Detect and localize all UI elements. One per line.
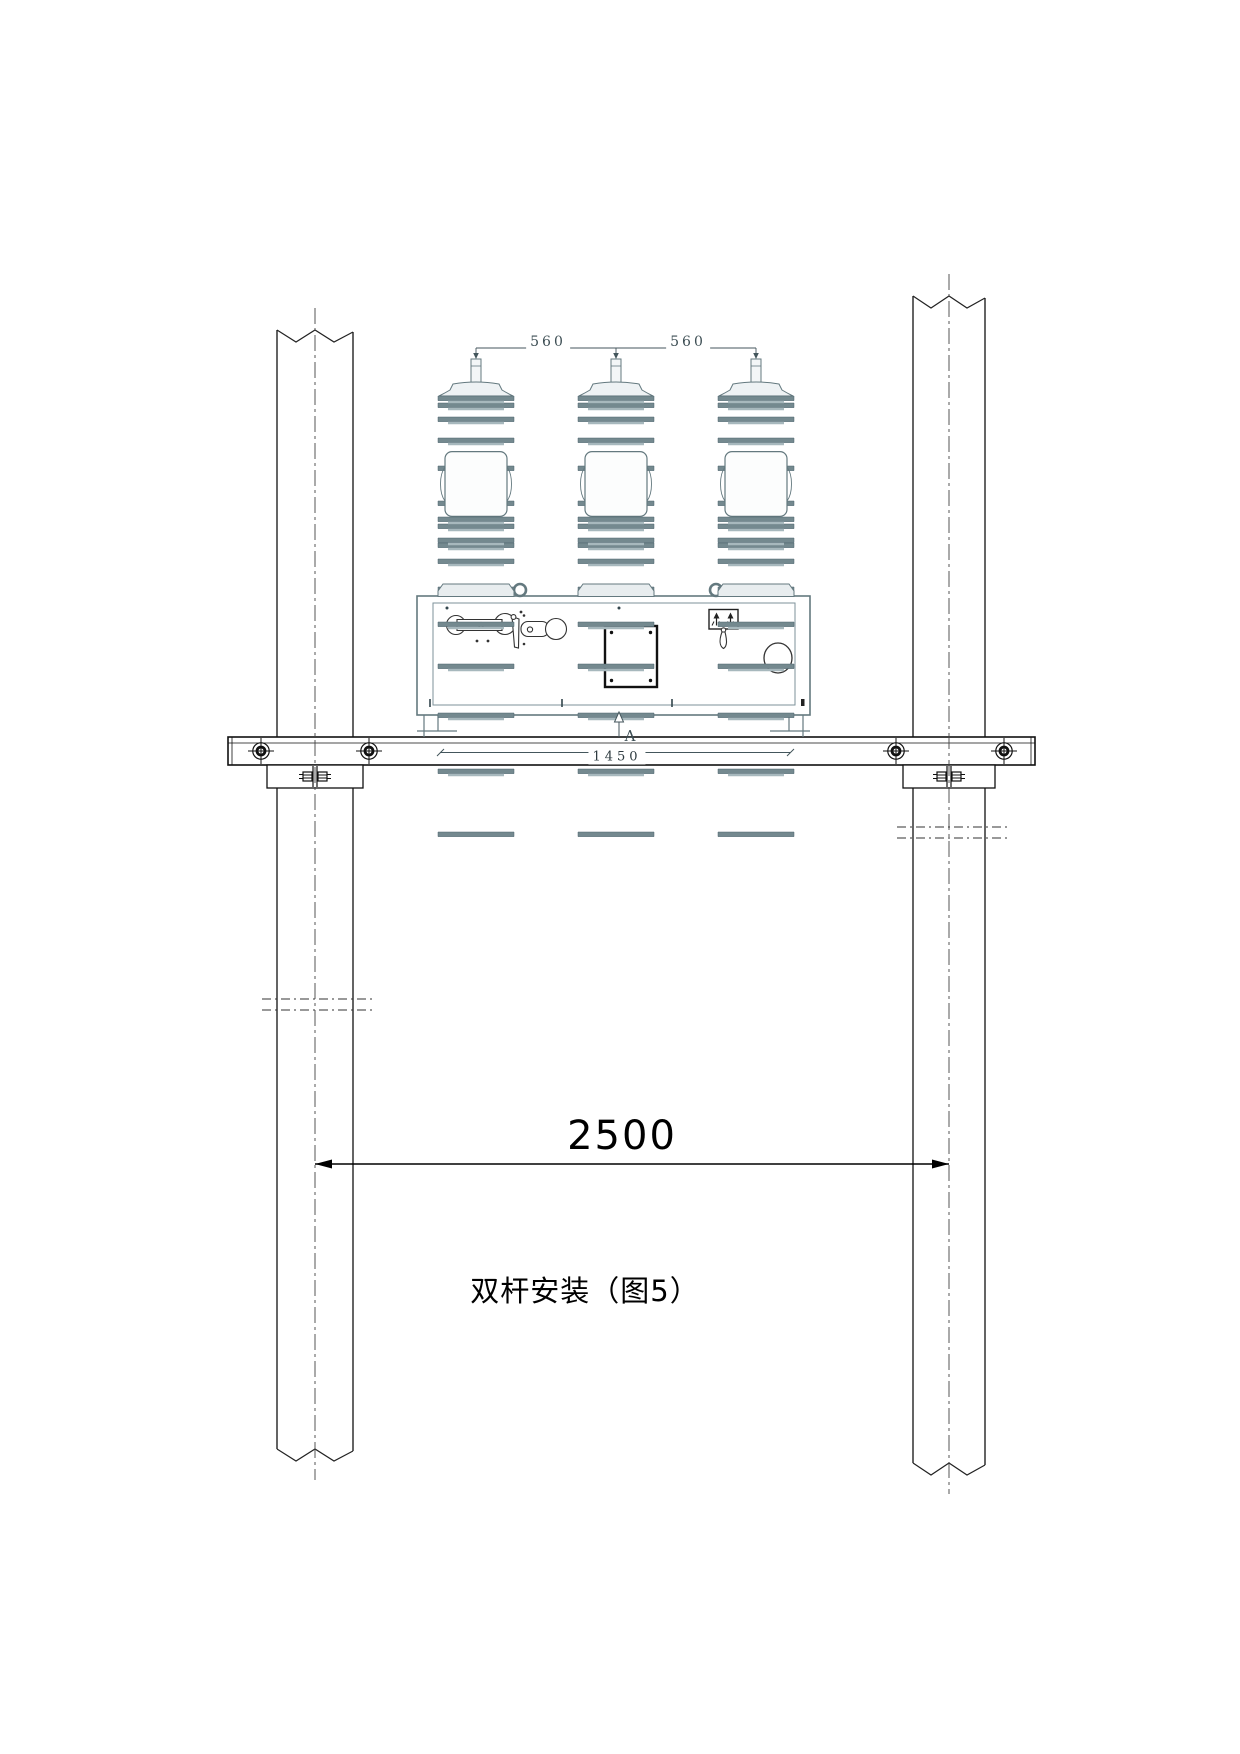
- dim-label-1450: 1450: [588, 750, 645, 765]
- figure-caption: 双杆安装（图5）: [470, 1268, 699, 1310]
- drawing-canvas: 560 560 1450 A 2500 双杆安装（图5）: [0, 0, 1240, 1754]
- section-marker-label: A: [625, 727, 636, 745]
- dim-label-560-right: 560: [666, 334, 710, 350]
- panel-latch: [801, 699, 805, 706]
- pole-right: [897, 296, 1008, 1475]
- lifting-eye-left: [514, 584, 526, 596]
- pole-mounted-breaker-diagram: [0, 0, 1240, 1754]
- pole-left: [262, 330, 372, 1461]
- pull-handle: [720, 632, 726, 649]
- access-port: [605, 626, 657, 687]
- dim-label-560-left: 560: [526, 334, 570, 350]
- pole-left-joint-lines: [262, 999, 372, 1010]
- dim-label-2500: 2500: [567, 1113, 677, 1159]
- dim-top-560: [473, 348, 759, 359]
- dim-pole-spacing-2500: [315, 1160, 949, 1169]
